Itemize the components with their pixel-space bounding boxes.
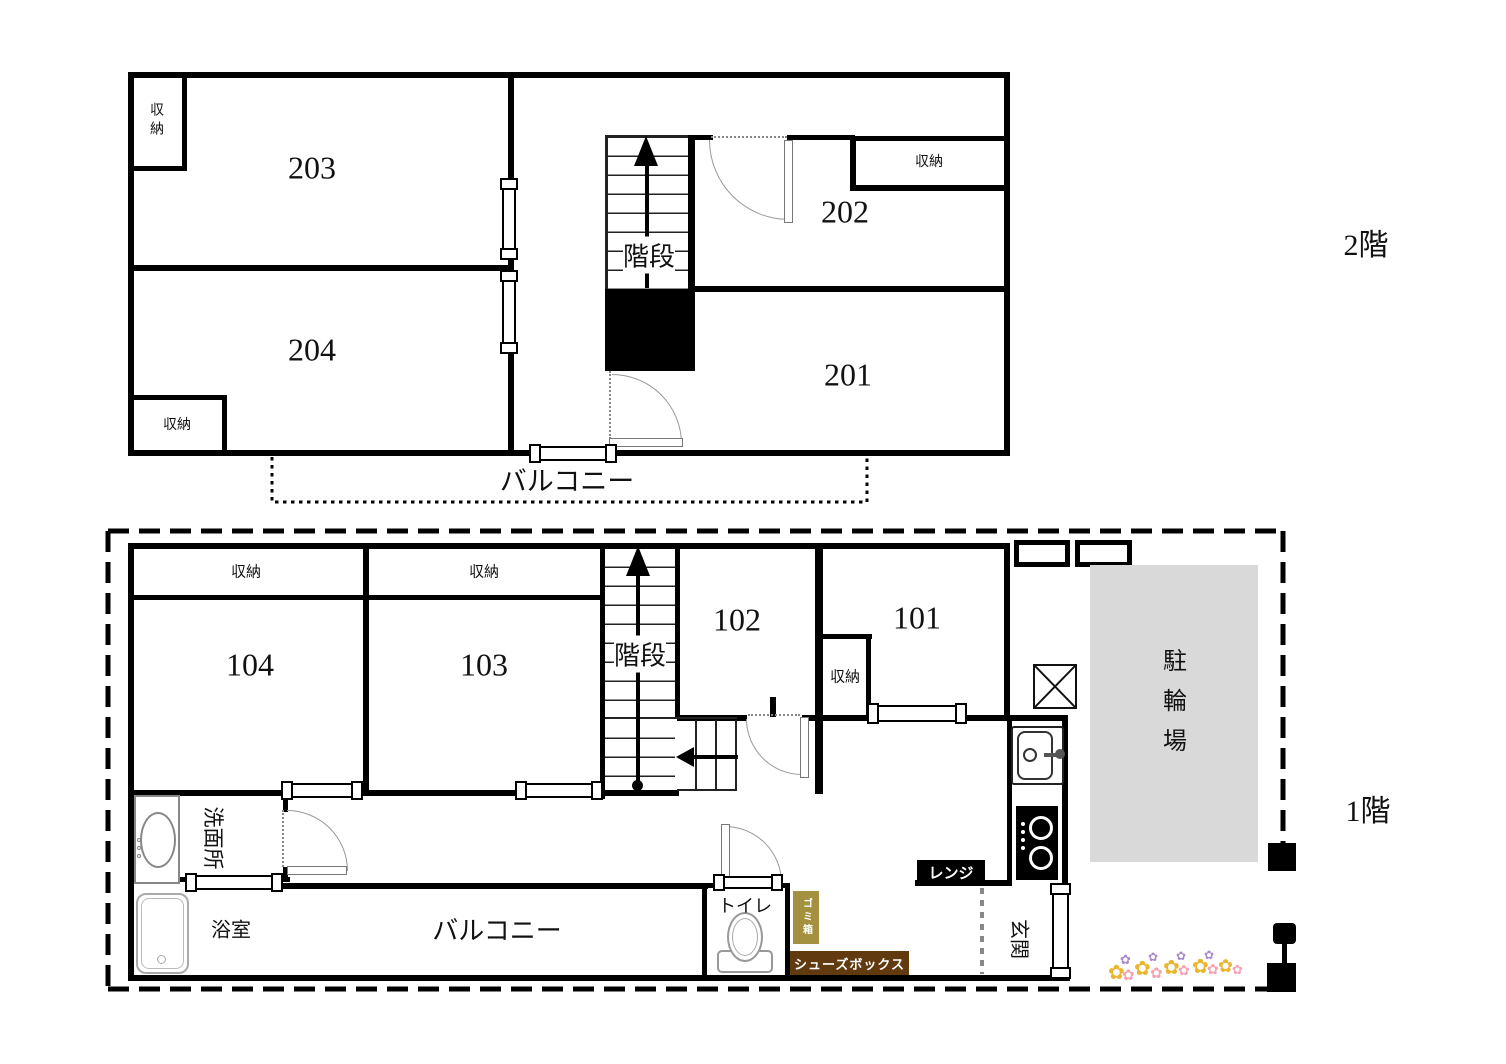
flower-icon: ✿ — [1122, 966, 1135, 984]
window-icon — [517, 783, 601, 798]
door-leaf — [287, 866, 347, 875]
closet-204-label: 収納 — [163, 414, 191, 434]
window-icon — [187, 875, 281, 890]
shoe-box-tag: シューズボックス — [790, 951, 909, 975]
floor2-label: 2階 — [1344, 220, 1389, 264]
room-203-label: 203 — [288, 150, 336, 187]
arrow-head-icon — [634, 136, 658, 166]
stairs-up-arrow — [636, 560, 640, 786]
door-leaf — [800, 717, 809, 778]
flower-icon: ✿ — [1120, 952, 1131, 968]
shoe-box-label: シューズボックス — [794, 954, 905, 973]
stairs-left-arrow — [692, 755, 738, 759]
floor-plan: ✿ ✿ ✿ ✿ ✿ ✿ ✿ ✿ ✿ ✿ ✿ ✿ ✿ ✿ レンジ ゴミ箱 シューズ… — [0, 0, 1506, 1064]
room-103-label: 103 — [460, 647, 508, 684]
entrance-label: 玄関 — [1007, 919, 1036, 959]
flower-icon: ✿ — [1218, 956, 1233, 977]
closet-203-label: 収納 — [147, 102, 167, 140]
toilet-label: トイレ — [718, 892, 772, 918]
door-opening — [748, 714, 800, 716]
range-tag: レンジ — [917, 860, 985, 885]
arrow-start-dot — [632, 780, 643, 791]
door-opening — [711, 136, 787, 138]
flower-icon: ✿ — [1204, 948, 1214, 962]
room-202-label: 202 — [821, 194, 869, 231]
bike-parking-label: 駐輪場 — [1155, 648, 1190, 768]
room-104-label: 104 — [226, 647, 274, 684]
flower-icon: ✿ — [1232, 962, 1243, 978]
washroom-label: 洗面所 — [199, 807, 229, 870]
window-icon — [502, 272, 516, 352]
stairs-1f-label: 階段 — [614, 636, 666, 673]
arrow-head-icon — [626, 546, 650, 576]
entrance-door-icon — [1052, 885, 1069, 977]
flower-bed: ✿ ✿ ✿ ✿ ✿ ✿ ✿ ✿ ✿ ✿ ✿ ✿ ✿ ✿ — [1108, 948, 1253, 994]
flower-icon: ✿ — [1207, 961, 1219, 978]
sliding-door-icon — [869, 705, 965, 722]
trash-box-label: ゴミ箱 — [799, 898, 814, 937]
closet-103-label: 収納 — [469, 561, 499, 582]
floor1-label: 1階 — [1346, 786, 1391, 830]
range-label: レンジ — [928, 862, 973, 883]
bathroom-label: 浴室 — [211, 914, 251, 943]
window-icon — [502, 180, 516, 258]
balcony-2f-label: バルコニー — [500, 460, 634, 499]
flower-icon: ✿ — [1176, 949, 1186, 963]
flower-icon: ✿ — [1148, 950, 1158, 964]
room-204-label: 204 — [288, 332, 336, 369]
stairs-2f-label: 階段 — [623, 237, 675, 274]
door-leaf — [784, 140, 793, 223]
room-201-label: 201 — [824, 357, 872, 394]
flower-icon: ✿ — [1178, 962, 1190, 979]
closet-101-label: 収納 — [830, 666, 860, 687]
flower-icon: ✿ — [1150, 964, 1163, 982]
closet-104-label: 収納 — [231, 561, 261, 582]
closet-202-label: 収納 — [915, 151, 943, 171]
room-101-label: 101 — [893, 600, 941, 637]
door-leaf — [609, 438, 683, 447]
gate-post — [1267, 963, 1296, 992]
window-icon — [283, 783, 361, 798]
balcony-1f-label: バルコニー — [432, 911, 561, 948]
door-opening — [282, 810, 284, 867]
arrow-head-icon — [676, 747, 694, 767]
window-icon — [715, 876, 781, 889]
entrance-divider — [980, 888, 984, 974]
door-opening — [609, 371, 611, 439]
room-102-label: 102 — [713, 602, 761, 639]
trash-box-tag: ゴミ箱 — [793, 891, 819, 944]
gate-post — [1268, 843, 1296, 871]
